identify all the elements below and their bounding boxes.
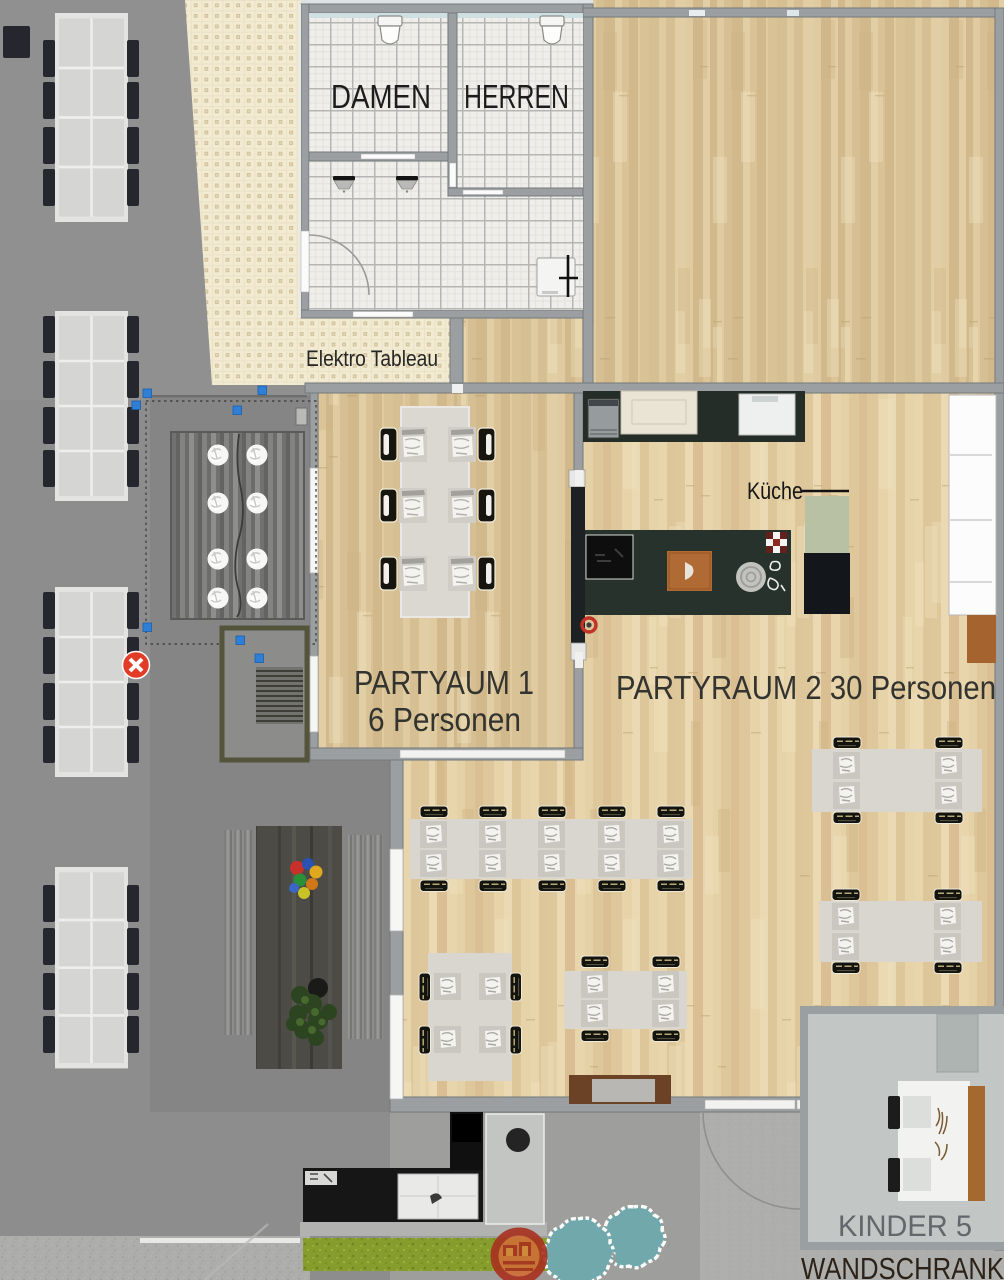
- svg-text:6 Personen: 6 Personen: [368, 701, 521, 738]
- svg-text:HERREN: HERREN: [464, 78, 569, 115]
- svg-text:Küche: Küche: [747, 478, 803, 505]
- svg-text:Elektro Tableau: Elektro Tableau: [306, 346, 438, 371]
- svg-text:WANDSCHRANK: WANDSCHRANK: [801, 1251, 1004, 1280]
- svg-text:PARTYRAUM 2 30 Personen: PARTYRAUM 2 30 Personen: [616, 669, 996, 706]
- svg-text:PARTYAUM 1: PARTYAUM 1: [354, 664, 534, 701]
- svg-text:DAMEN: DAMEN: [331, 78, 431, 115]
- svg-text:KINDER 5: KINDER 5: [838, 1210, 972, 1243]
